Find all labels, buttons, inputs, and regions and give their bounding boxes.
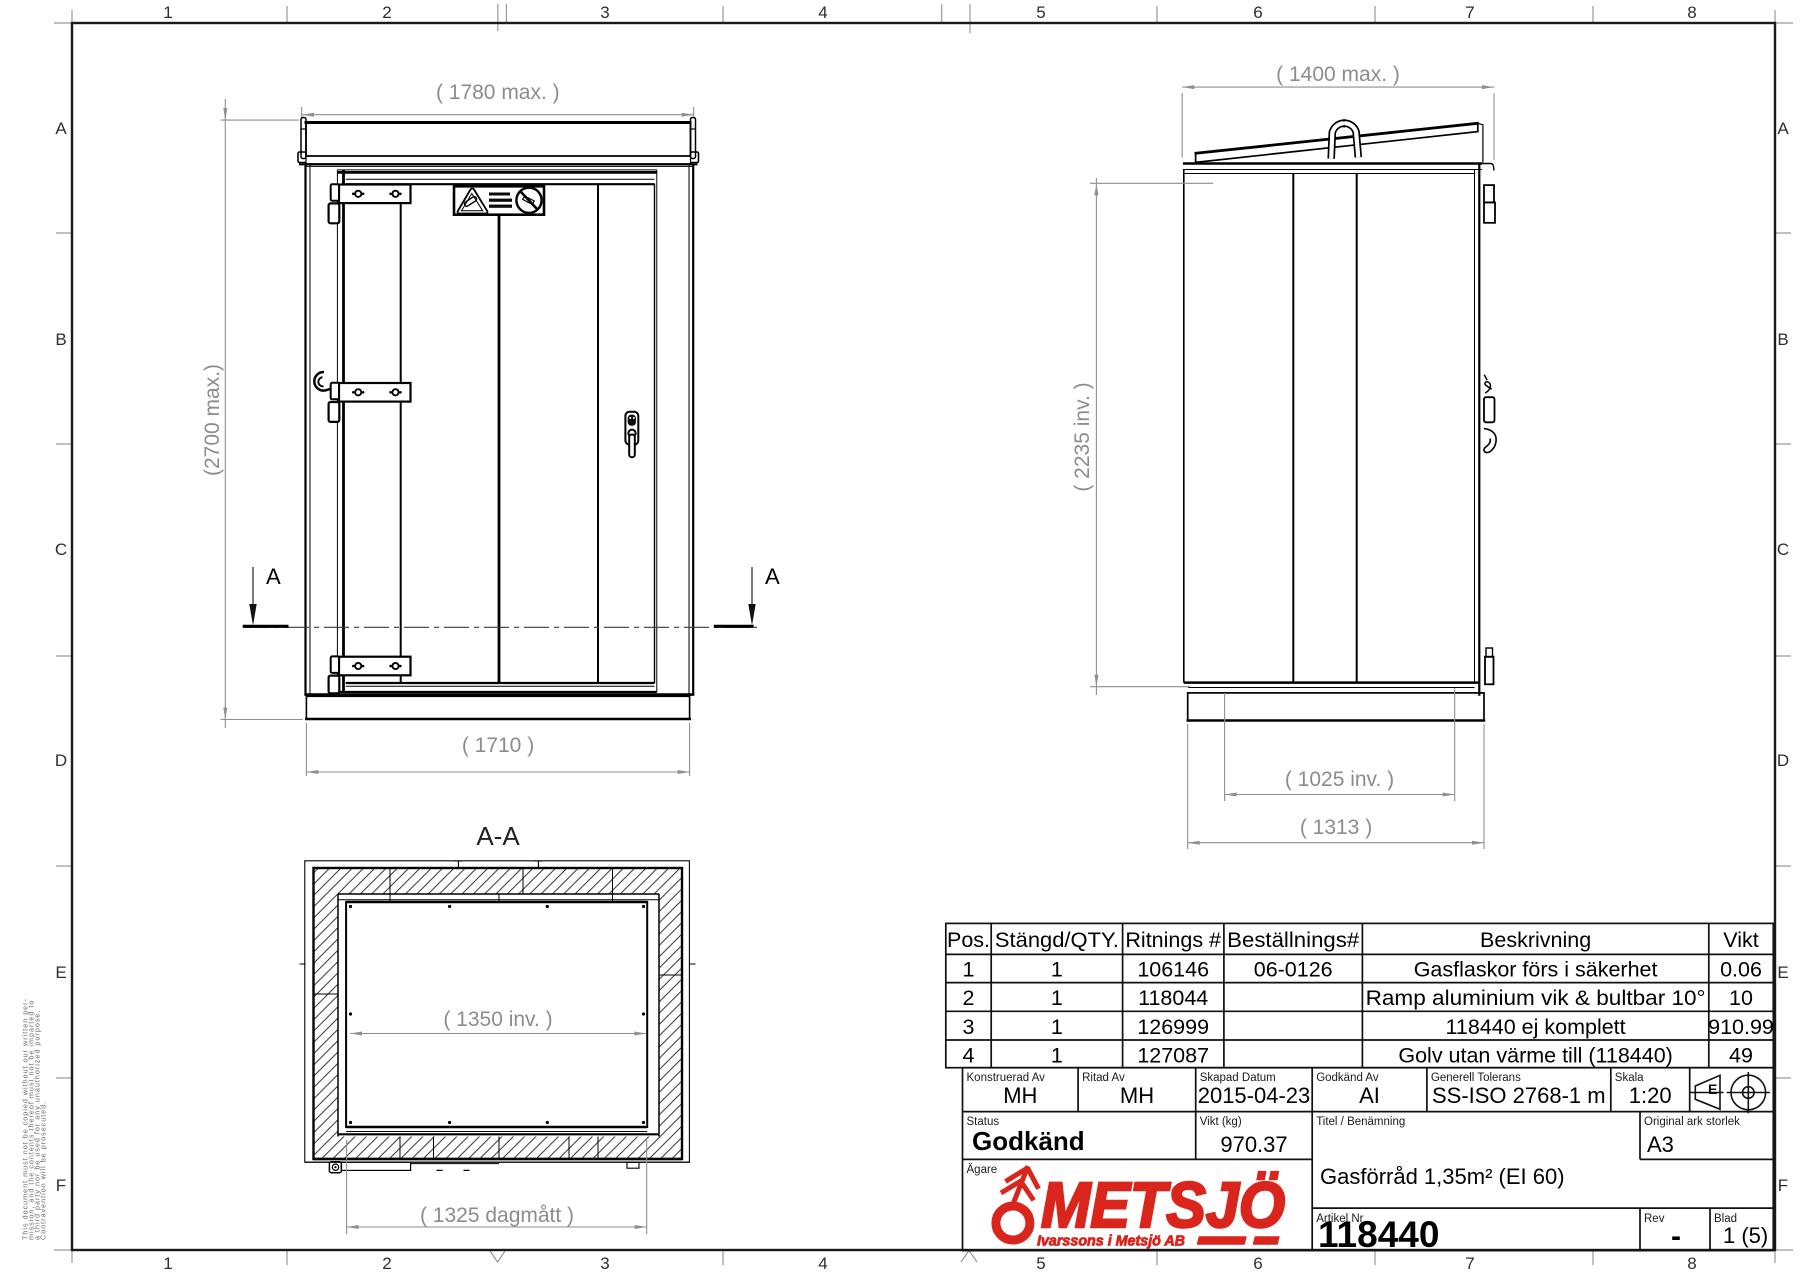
svg-text:Original ark storlek: Original ark storlek: [1644, 1116, 1740, 1128]
svg-text:C: C: [1777, 540, 1789, 559]
svg-text:7: 7: [1465, 3, 1474, 22]
svg-text:118044: 118044: [1138, 986, 1208, 1010]
svg-text:910.99: 910.99: [1708, 1015, 1774, 1039]
svg-text:METSJÖ: METSJÖ: [1041, 1169, 1285, 1241]
svg-text:118440 ej komplett: 118440 ej komplett: [1446, 1015, 1626, 1039]
svg-text:2: 2: [382, 1254, 391, 1273]
svg-text:C: C: [55, 540, 67, 559]
svg-text:( 1025 inv. ): ( 1025 inv. ): [1285, 768, 1394, 791]
svg-text:( 1780 max. ): ( 1780 max. ): [436, 81, 560, 104]
svg-text:118440: 118440: [1318, 1214, 1439, 1255]
svg-text:( 2235 inv. ): ( 2235 inv. ): [1071, 382, 1094, 491]
svg-text:( 1400 max. ): ( 1400 max. ): [1276, 63, 1400, 86]
svg-text:AI: AI: [1359, 1083, 1380, 1108]
svg-text:E: E: [55, 963, 66, 982]
svg-text:Pos.: Pos.: [947, 928, 990, 952]
svg-text:3: 3: [963, 1015, 975, 1039]
svg-text:8: 8: [1687, 1254, 1696, 1273]
svg-text:1: 1: [163, 1254, 172, 1273]
svg-text:5: 5: [1036, 1254, 1045, 1273]
svg-text:B: B: [55, 330, 66, 349]
svg-text:2: 2: [382, 3, 391, 22]
svg-text:Titel / Benämning: Titel / Benämning: [1316, 1116, 1405, 1128]
svg-text:4: 4: [818, 1254, 827, 1273]
svg-text:D: D: [1777, 751, 1789, 770]
svg-text:1 (5): 1 (5): [1723, 1223, 1768, 1248]
svg-text:A3: A3: [1647, 1132, 1674, 1157]
svg-text:MH: MH: [1003, 1083, 1037, 1108]
svg-text:A: A: [1777, 119, 1789, 138]
svg-text:Ivarssons i Metsjö AB: Ivarssons i Metsjö AB: [1037, 1234, 1185, 1250]
svg-text:D: D: [55, 751, 67, 770]
svg-text:1: 1: [1051, 1044, 1063, 1068]
svg-text:4: 4: [963, 1044, 975, 1068]
svg-text:B: B: [1777, 330, 1788, 349]
svg-text:Gasflaskor förs i säkerhet: Gasflaskor förs i säkerhet: [1414, 958, 1658, 982]
svg-text:E: E: [1777, 963, 1788, 982]
svg-text:106146: 106146: [1137, 958, 1209, 982]
svg-text:F: F: [56, 1176, 66, 1195]
svg-text:MH: MH: [1120, 1083, 1154, 1108]
svg-text:A: A: [266, 564, 281, 589]
svg-text:7: 7: [1465, 1254, 1474, 1273]
svg-text:Vikt (kg): Vikt (kg): [1200, 1116, 1242, 1128]
svg-text:Ägare: Ägare: [967, 1164, 998, 1176]
svg-text:Gasförråd 1,35m² (EI 60): Gasförråd 1,35m² (EI 60): [1320, 1164, 1565, 1189]
svg-text:3: 3: [600, 3, 609, 22]
svg-text:F: F: [1778, 1176, 1788, 1195]
svg-text:0.06: 0.06: [1720, 958, 1762, 982]
svg-text:A: A: [55, 119, 67, 138]
svg-text:6: 6: [1253, 1254, 1262, 1273]
svg-text:Vikt: Vikt: [1723, 928, 1758, 952]
svg-text:Stängd/QTY.: Stängd/QTY.: [995, 928, 1119, 952]
svg-text:( 1325 dagmått ): ( 1325 dagmått ): [420, 1204, 574, 1227]
svg-text:127087: 127087: [1137, 1044, 1209, 1068]
svg-text:Ritad Av: Ritad Av: [1082, 1072, 1125, 1084]
svg-text:1: 1: [1051, 1015, 1063, 1039]
svg-text:3: 3: [600, 1254, 609, 1273]
svg-text:( 1350 inv. ): ( 1350 inv. ): [443, 1008, 552, 1031]
svg-text:1: 1: [163, 3, 172, 22]
svg-text:970.37: 970.37: [1220, 1132, 1287, 1157]
svg-text:(2700 max.): (2700 max.): [201, 364, 224, 476]
svg-text:1: 1: [963, 958, 975, 982]
svg-text:Contravention will be prosecut: Contravention will be prosecuted.: [39, 1101, 48, 1240]
svg-text:49: 49: [1729, 1044, 1753, 1068]
svg-text:1: 1: [1051, 986, 1063, 1010]
svg-text:1:20: 1:20: [1629, 1083, 1672, 1108]
svg-text:126999: 126999: [1137, 1015, 1209, 1039]
svg-text:1: 1: [1051, 958, 1063, 982]
svg-text:Beskrivning: Beskrivning: [1480, 928, 1591, 952]
svg-text:10: 10: [1729, 986, 1753, 1010]
svg-text:E: E: [1708, 1081, 1717, 1097]
svg-text:Golv utan värme till (118440): Golv utan värme till (118440): [1398, 1044, 1672, 1068]
svg-text:Ritnings #: Ritnings #: [1125, 928, 1221, 952]
svg-text:6: 6: [1253, 3, 1262, 22]
svg-text:2: 2: [963, 986, 975, 1010]
svg-text:5: 5: [1036, 3, 1045, 22]
svg-text:-: -: [1671, 1220, 1681, 1253]
svg-text:Beställnings#: Beställnings#: [1227, 928, 1359, 952]
svg-text:Godkänd: Godkänd: [972, 1126, 1085, 1156]
svg-text:A: A: [765, 564, 780, 589]
svg-text:A-A: A-A: [476, 821, 520, 851]
svg-text:2015-04-23: 2015-04-23: [1198, 1083, 1311, 1108]
svg-text:( 1710 ): ( 1710 ): [462, 734, 534, 757]
svg-text:Ramp aluminium vik & bultbar 1: Ramp aluminium vik & bultbar 10°: [1366, 986, 1706, 1010]
svg-text:06-0126: 06-0126: [1254, 958, 1333, 982]
svg-text:8: 8: [1687, 3, 1696, 22]
svg-text:( 1313 ): ( 1313 ): [1300, 816, 1372, 839]
svg-text:Rev: Rev: [1644, 1213, 1665, 1225]
svg-text:4: 4: [818, 3, 827, 22]
svg-text:SS-ISO 2768-1 m: SS-ISO 2768-1 m: [1432, 1083, 1606, 1108]
